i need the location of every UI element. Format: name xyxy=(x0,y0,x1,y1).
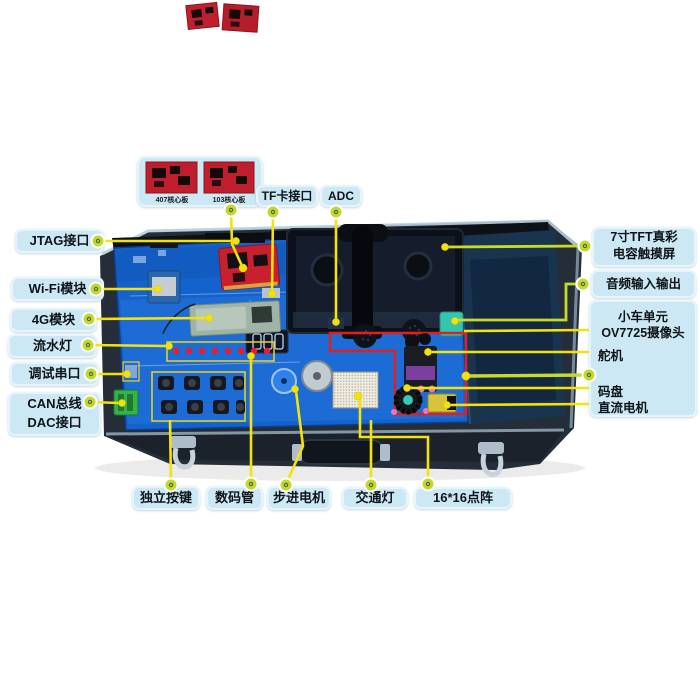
annotated-hardware-diagram: 407核心板 103核心板 JTAG接口 Wi-Fi模块 4G模块 流水灯 调试… xyxy=(0,0,700,700)
label-debug-uart: 调试串口 xyxy=(10,362,99,386)
label-4g: 4G模块 xyxy=(10,308,97,332)
label-tft-screen: 7寸TFT真彩 电容触摸屏 xyxy=(592,227,696,267)
label-led-chaser: 流水灯 xyxy=(8,334,97,358)
can-dac-terminal xyxy=(114,390,138,415)
label-servo: 舵机 xyxy=(598,345,623,364)
dc-motor-module xyxy=(428,394,456,412)
label-seven-seg: 数码管 xyxy=(206,486,263,510)
label-can-dac: CAN总线 DAC接口 xyxy=(8,392,101,436)
case-handle xyxy=(292,440,390,464)
label-tf-card: TF卡接口 xyxy=(256,185,318,207)
label-dot-matrix: 16*16点阵 xyxy=(414,487,512,509)
wifi-module xyxy=(148,271,180,303)
label-traffic-light: 交通灯 xyxy=(342,487,408,509)
label-stepper: 步进电机 xyxy=(267,486,331,510)
label-ov7725-camera: OV7725摄像头 xyxy=(589,322,697,341)
label-jtag: JTAG接口 xyxy=(15,229,104,253)
tft-screen xyxy=(287,229,463,333)
adc-component xyxy=(328,317,344,329)
label-adc: ADC xyxy=(320,185,362,207)
inset-core-boards: 407核心板 103核心板 xyxy=(137,156,263,207)
label-car-unit-group: 小车单元 OV7725摄像头 舵机 码盘 直流电机 xyxy=(589,300,697,417)
caption-103-core-board: 103核心板 xyxy=(203,195,255,205)
label-dc-motor: 直流电机 xyxy=(598,397,648,416)
caption-407-core-board: 407核心板 xyxy=(146,195,198,205)
label-keys: 独立按键 xyxy=(132,486,200,510)
jtag-header xyxy=(205,233,265,243)
tf-card-slot xyxy=(262,288,280,298)
core-board xyxy=(218,243,279,290)
label-audio-io: 音频输入输出 xyxy=(591,270,696,298)
top-pcb-fragments xyxy=(186,2,259,32)
dot-matrix-module xyxy=(333,372,378,408)
label-wifi: Wi-Fi模块 xyxy=(11,277,104,301)
